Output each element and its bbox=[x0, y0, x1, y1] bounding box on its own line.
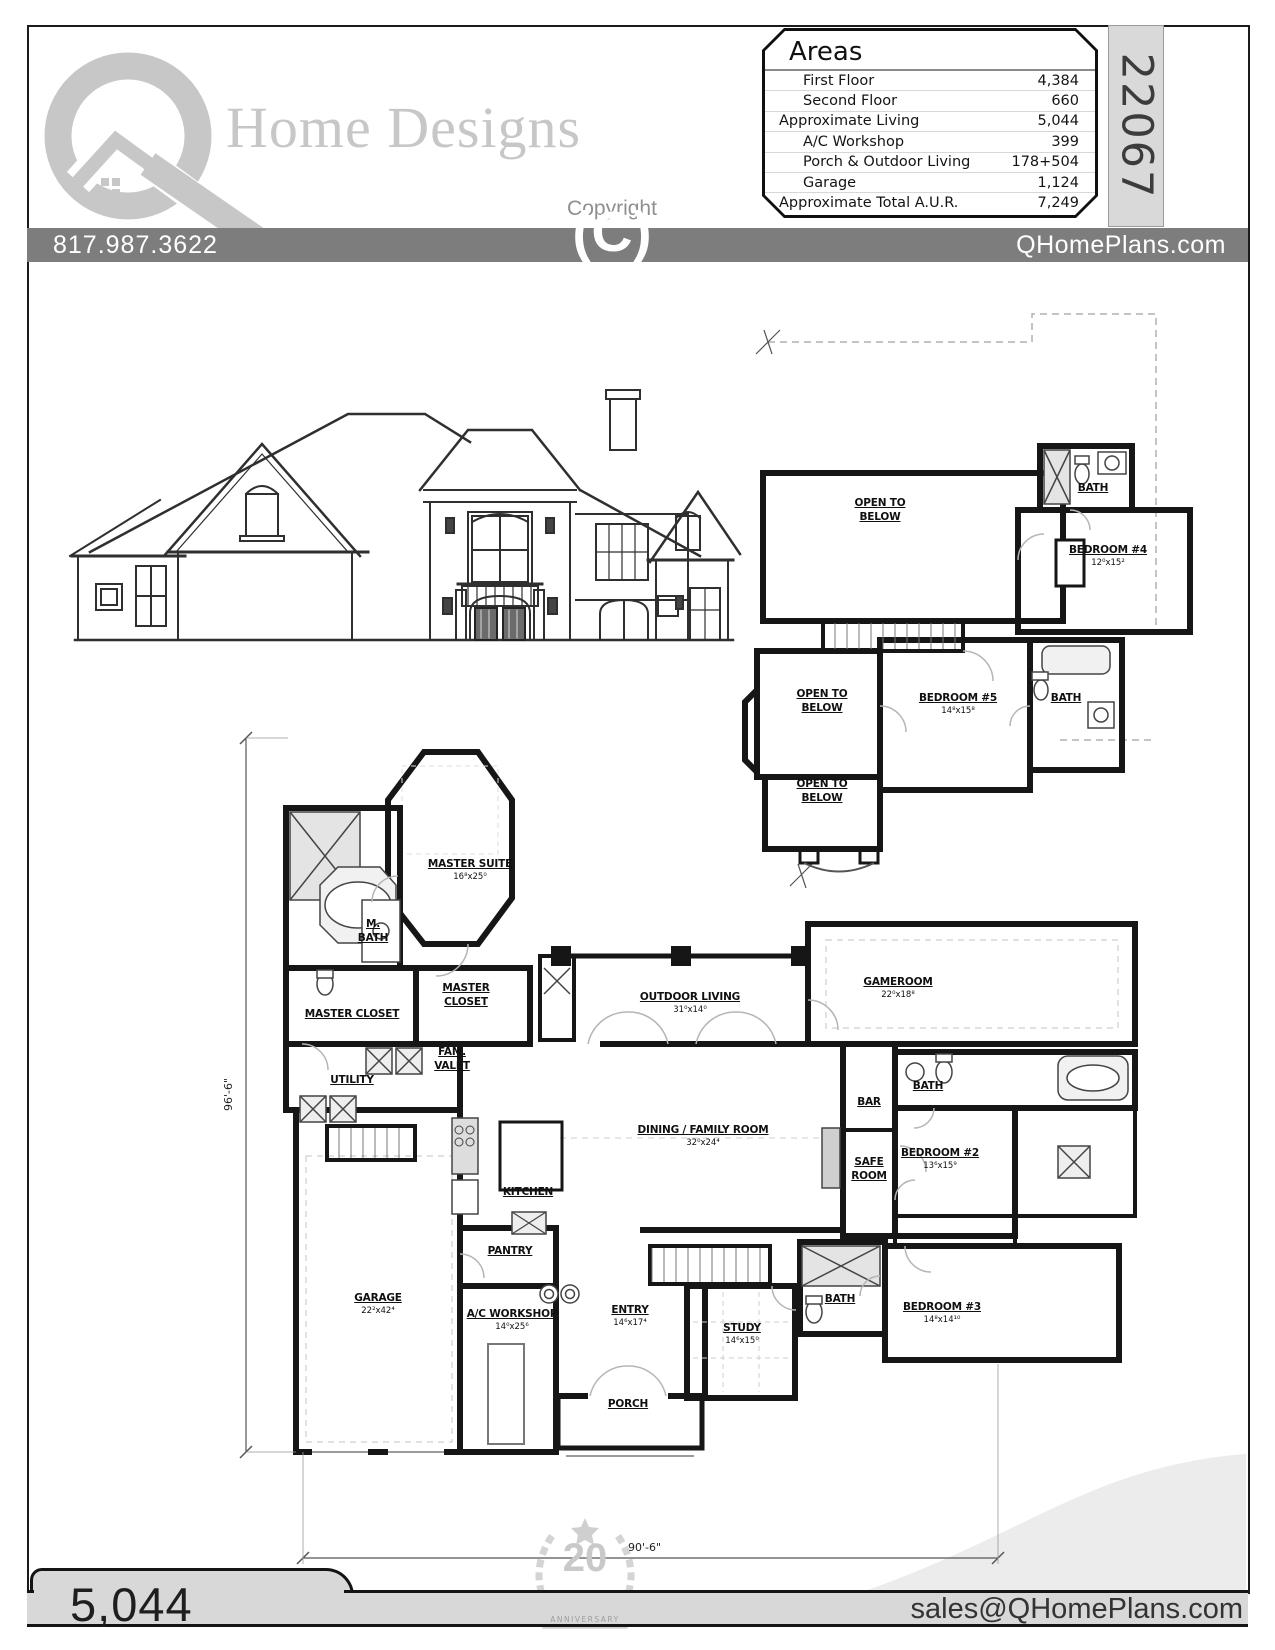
plan-number: 22067 bbox=[1111, 53, 1161, 200]
copyright-symbol: (C) bbox=[550, 204, 674, 261]
area-row: Approximate Living5,044 bbox=[765, 112, 1095, 132]
areas-table-title: Areas bbox=[765, 31, 1095, 71]
area-row: Approximate Total A.U.R.7,249 bbox=[765, 193, 1095, 212]
room-label-bedroom-2: BEDROOM #213⁶x15⁹ bbox=[901, 1147, 979, 1171]
room-label-open-to-below-2: OPEN TO BELOW bbox=[797, 688, 848, 715]
room-label-dining-family: DINING / FAMILY ROOM32⁰x24⁴ bbox=[637, 1124, 768, 1148]
front-elevation-drawing bbox=[70, 390, 740, 640]
room-label-fam-valet: FAM. VALET bbox=[434, 1046, 470, 1073]
room-label-bath-5: BATH bbox=[1051, 692, 1081, 706]
room-label-ac-workshop: A/C WORKSHOP14⁰x25⁶ bbox=[467, 1308, 558, 1332]
room-label-open-to-below-3: OPEN TO BELOW bbox=[797, 778, 848, 805]
room-label-porch: PORCH bbox=[608, 1398, 648, 1412]
room-label-bath-2: BATH bbox=[913, 1080, 943, 1094]
room-label-study: STUDY14⁶x15⁰ bbox=[723, 1322, 761, 1346]
room-label-master-closet-2: MASTER CLOSET bbox=[442, 982, 489, 1009]
room-label-outdoor-living: OUTDOOR LIVING31⁰x14⁰ bbox=[640, 991, 740, 1015]
first-floor-plan bbox=[286, 752, 1135, 1458]
area-row: Second Floor660 bbox=[765, 91, 1095, 111]
room-label-bath-3: BATH bbox=[825, 1293, 855, 1307]
area-row: A/C Workshop399 bbox=[765, 132, 1095, 152]
website-url: QHomePlans.com bbox=[1016, 231, 1248, 260]
room-label-bath-4: BATH bbox=[1078, 482, 1108, 496]
area-row: First Floor4,384 bbox=[765, 71, 1095, 91]
room-label-open-to-below-1: OPEN TO BELOW bbox=[855, 497, 906, 524]
room-label-bedroom-4: BEDROOM #412⁰x15² bbox=[1069, 544, 1147, 568]
logo-text: Home Designs bbox=[226, 94, 581, 161]
dim-width-label: 90'-6" bbox=[628, 1541, 661, 1554]
sqft-value: 5,044 bbox=[70, 1577, 193, 1632]
plan-sheet: Home Designs Areas First Floor4,384 Seco… bbox=[0, 0, 1275, 1650]
room-label-safe-room: SAFE ROOM bbox=[851, 1156, 887, 1183]
room-label-pantry: PANTRY bbox=[488, 1245, 533, 1259]
room-label-m-bath: M. BATH bbox=[358, 918, 388, 945]
badge-banner-text: ANNIVERSARY bbox=[550, 1615, 620, 1624]
room-label-entry: ENTRY14⁶x17⁴ bbox=[611, 1304, 648, 1328]
dimension-lines bbox=[240, 732, 1004, 1564]
room-label-bedroom-5: BEDROOM #514⁸x15⁸ bbox=[919, 692, 997, 716]
room-label-kitchen: KITCHEN bbox=[503, 1186, 553, 1200]
room-label-bedroom-3: BEDROOM #314⁸x14¹⁰ bbox=[903, 1301, 981, 1325]
badge-number: 20 bbox=[563, 1536, 608, 1581]
phone-number: 817.987.3622 bbox=[27, 231, 218, 260]
email-address: sales@QHomePlans.com bbox=[911, 1593, 1243, 1626]
room-label-bar: BAR bbox=[857, 1096, 881, 1110]
room-label-gameroom: GAMEROOM22⁰x18⁸ bbox=[863, 976, 932, 1000]
areas-table: Areas First Floor4,384 Second Floor660 A… bbox=[762, 28, 1098, 218]
plan-number-strip: 22067 bbox=[1108, 25, 1164, 227]
room-label-master-closet: MASTER CLOSET bbox=[305, 1008, 399, 1022]
room-label-master-suite: MASTER SUITE16⁸x25⁰ bbox=[428, 858, 512, 882]
room-label-garage: GARAGE22²x42⁴ bbox=[354, 1292, 402, 1316]
swoosh-graphic bbox=[862, 1454, 1246, 1592]
room-label-utility: UTILITY bbox=[330, 1074, 374, 1088]
area-row: Garage1,124 bbox=[765, 173, 1095, 193]
dim-height-label: 96'-6" bbox=[222, 1078, 235, 1111]
area-row: Porch & Outdoor Living178+504 bbox=[765, 153, 1095, 173]
